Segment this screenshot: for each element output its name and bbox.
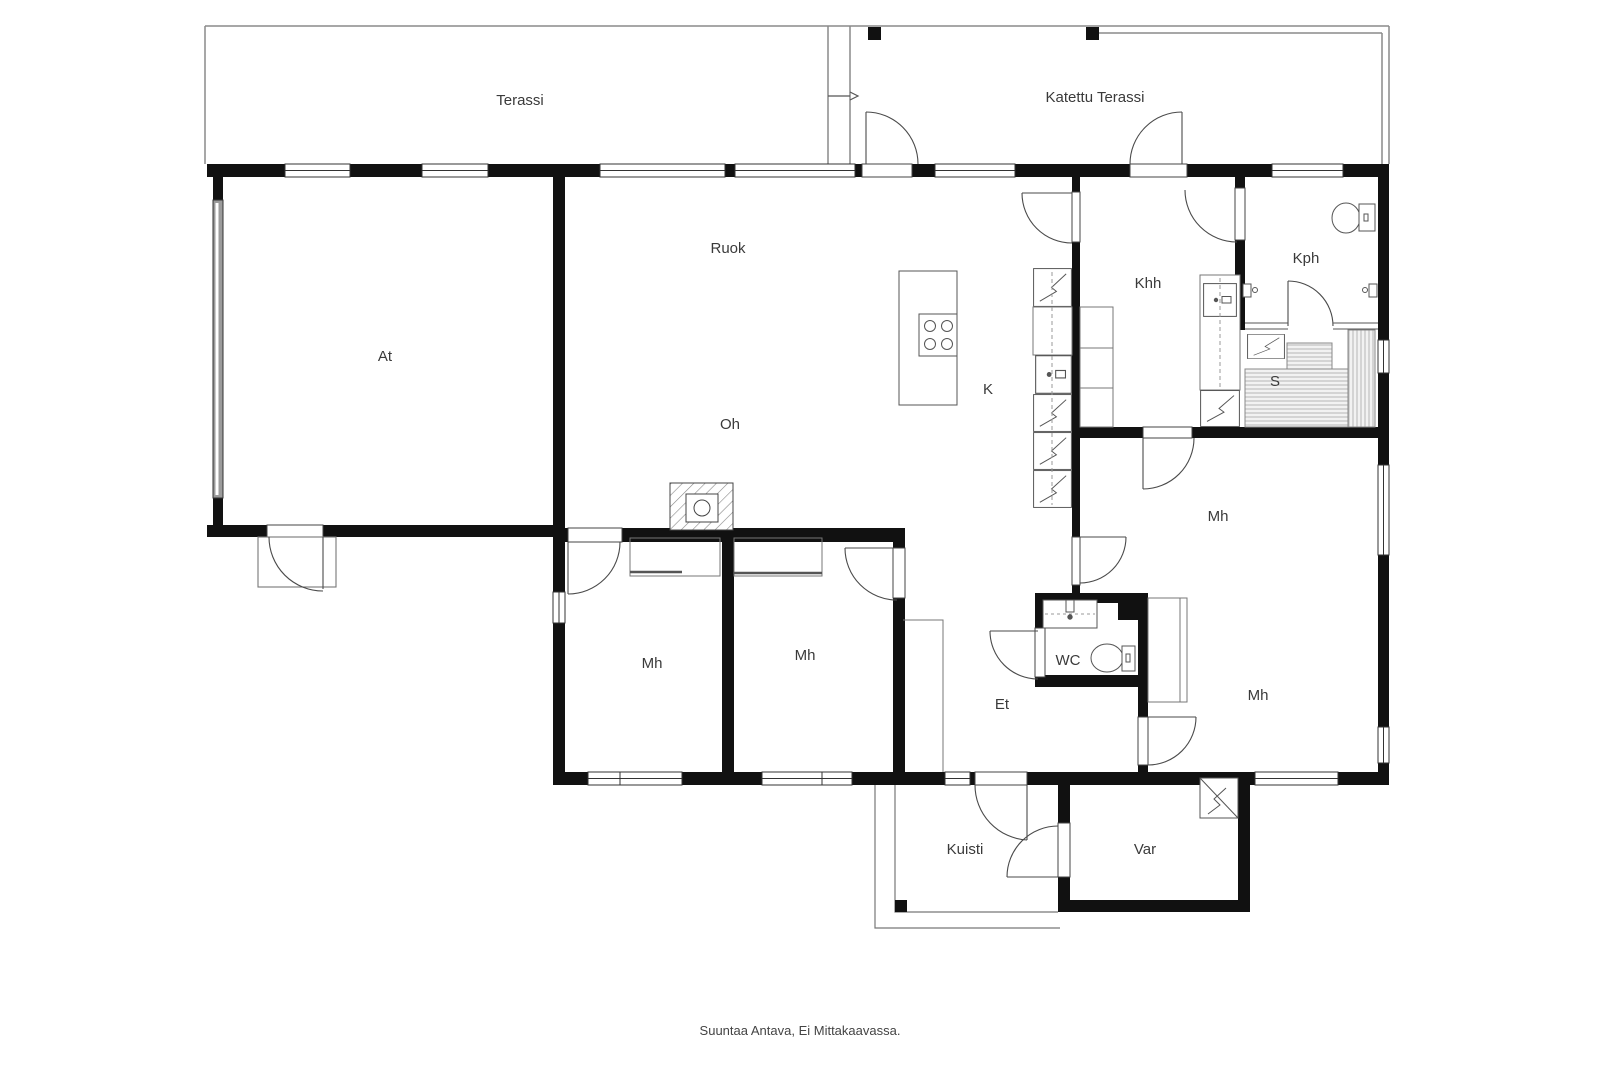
fireplace-icon: [670, 483, 733, 530]
terrace-posts: [868, 27, 1099, 40]
door-mh-left: [568, 542, 620, 594]
wc-sink-icon: [1043, 600, 1097, 628]
sink-icon: [1036, 356, 1072, 394]
room-label-k: K: [983, 381, 993, 398]
room-label-at: At: [378, 348, 393, 365]
windows-layer: [285, 164, 1389, 785]
door-khh-mh: [1143, 438, 1194, 489]
room-label-mh-left: Mh: [642, 655, 663, 672]
room-label-var: Var: [1134, 841, 1156, 858]
window: [735, 164, 855, 177]
door-kitchen-khh: [1022, 193, 1072, 243]
room-label-mh-center: Mh: [795, 647, 816, 664]
shower-valve-icon: [1363, 284, 1378, 297]
kph-toilet-icon: [1332, 203, 1375, 233]
door-front-entry: [975, 785, 1027, 840]
doors-layer: [258, 112, 1333, 877]
window: [762, 772, 852, 785]
door-khh-terrace: [1130, 112, 1182, 164]
room-label-et: Et: [995, 696, 1010, 713]
room-label-mh-bottom-right: Mh: [1248, 687, 1269, 704]
window: [285, 164, 350, 177]
var-hatch-icon: [1200, 778, 1238, 818]
room-label-oh: Oh: [720, 416, 740, 433]
window: [422, 164, 488, 177]
door-et-mh-bottom: [1148, 717, 1196, 765]
fixtures-layer: [630, 203, 1378, 818]
terrace-post: [1086, 27, 1099, 40]
room-label-mh-right: Mh: [1208, 508, 1229, 525]
door-garage: [258, 537, 336, 591]
terrace-post: [868, 27, 881, 40]
floorplan-page: Terassi Katettu Terassi At Ruok Oh K Khh…: [0, 0, 1600, 1066]
stove-icon: [919, 314, 957, 356]
door-kph-sauna: [1288, 281, 1333, 326]
window: [945, 772, 970, 785]
shower-valve-icon: [1243, 284, 1258, 297]
window: [1378, 465, 1389, 555]
door-openings: [267, 164, 1245, 877]
terrace-step-arrow: [828, 92, 858, 100]
door-mh-center: [845, 548, 897, 600]
room-label-ruok: Ruok: [710, 240, 746, 257]
window: [1272, 164, 1343, 177]
window: [553, 592, 565, 623]
door-ruok-terrace: [866, 112, 918, 164]
window: [935, 164, 1015, 177]
door-kuisti-var: [1007, 826, 1058, 877]
terrace-outlines: [205, 26, 1389, 164]
window: [1378, 727, 1389, 763]
kuisti-post: [895, 900, 907, 912]
door-khh-kph: [1185, 190, 1237, 242]
et-closet: [903, 620, 943, 772]
room-label-terassi: Terassi: [496, 92, 544, 109]
kitchen-counter: [1033, 269, 1072, 508]
garage-door: [213, 200, 223, 498]
floorplan-svg: Terassi Katettu Terassi At Ruok Oh K Khh…: [0, 0, 1600, 1066]
window: [1255, 772, 1338, 785]
labels-layer: Terassi Katettu Terassi At Ruok Oh K Khh…: [378, 89, 1319, 1038]
wc-toilet-icon: [1091, 644, 1135, 672]
appliance-icon: [1201, 391, 1240, 427]
room-label-s: S: [1270, 373, 1280, 390]
room-label-kph: Kph: [1293, 250, 1320, 267]
door-wc: [990, 631, 1038, 679]
disclaimer-note: Suuntaa Antava, Ei Mittakaavassa.: [700, 1023, 901, 1038]
window: [588, 772, 682, 785]
sauna-heater-icon: [1248, 334, 1285, 358]
room-label-kuisti: Kuisti: [947, 841, 984, 858]
window: [1378, 340, 1389, 373]
mh-closet: [1148, 598, 1187, 702]
room-label-wc: WC: [1056, 652, 1081, 669]
window: [600, 164, 725, 177]
room-label-khh: Khh: [1135, 275, 1162, 292]
door-et-mh-right: [1080, 537, 1126, 583]
room-label-katettu-terassi: Katettu Terassi: [1046, 89, 1145, 106]
kitchen-island: [899, 271, 957, 405]
